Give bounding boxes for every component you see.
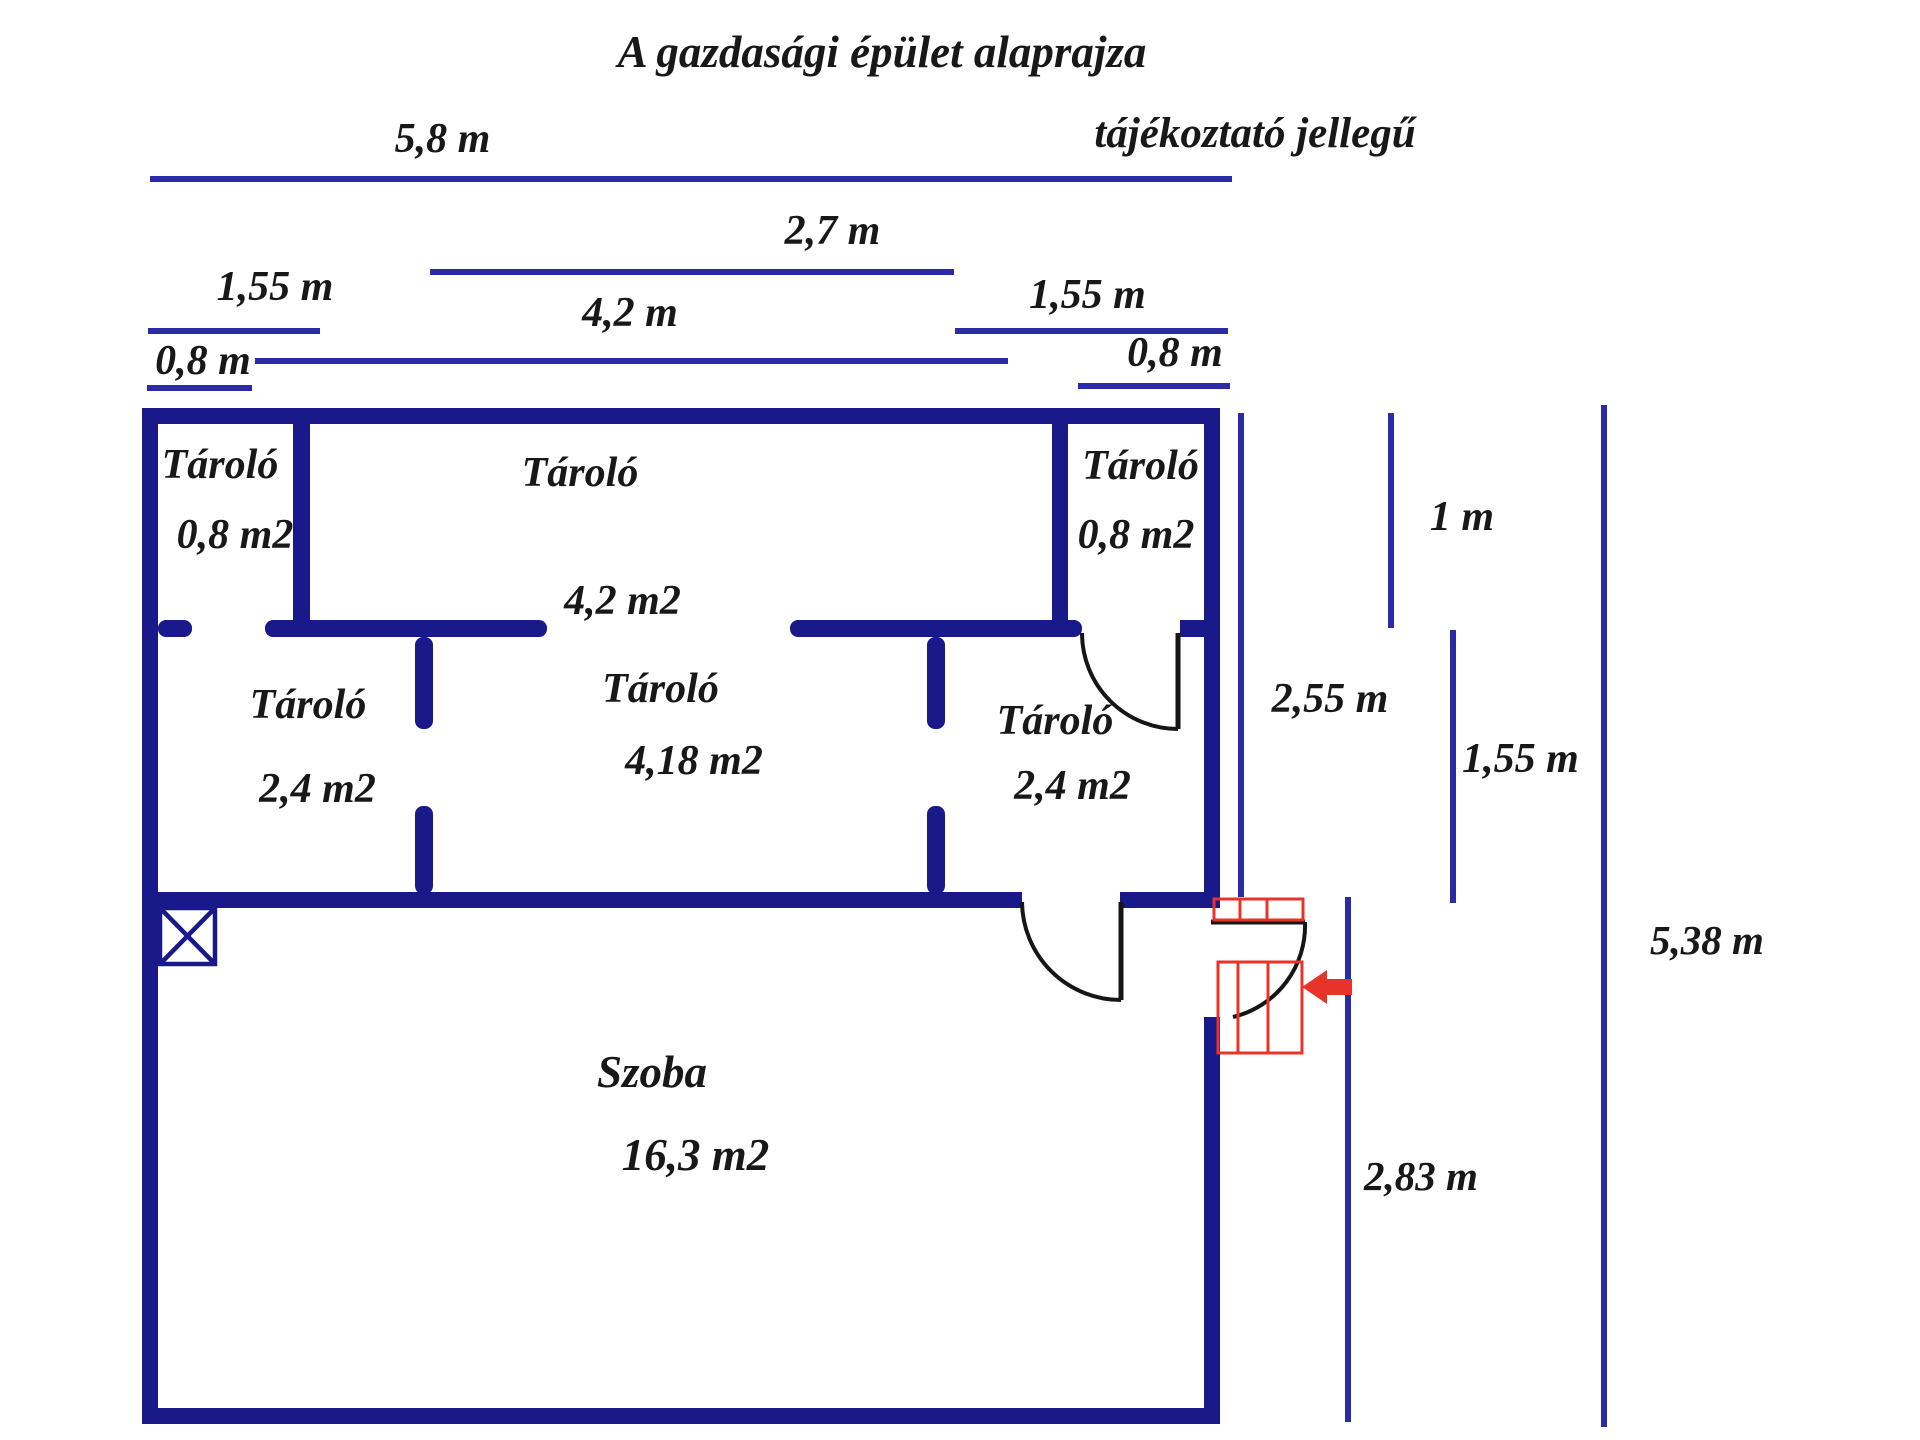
room-storage-topright-area: 0,8 m2 (1060, 512, 1212, 558)
dim-line-width-left (148, 328, 320, 334)
dim-label-height-lower: 2,83 m (1346, 1154, 1496, 1199)
wall-exterior-top (142, 408, 1220, 424)
floor-plan: A gazdasági épület alaprajza tájékoztató… (0, 0, 1920, 1440)
dim-line-height-upper (1238, 413, 1244, 897)
room-storage-midcenter-area: 4,18 m2 (603, 738, 785, 784)
dim-line-door-right (1078, 383, 1230, 389)
dim-label-width-right: 1,55 m (1005, 272, 1170, 318)
wall-exterior-right-lower (1204, 1017, 1220, 1424)
room-storage-midleft-name: Tároló (228, 682, 388, 728)
room-szoba-name: Szoba (578, 1048, 726, 1098)
dim-label-height-total: 5,38 m (1622, 918, 1792, 963)
wall-exterior-left (142, 408, 158, 1424)
wall-divider-segment-1 (158, 620, 192, 637)
room-storage-midright-area: 2,4 m2 (990, 763, 1155, 809)
dim-line-height-top-row (1388, 413, 1394, 628)
dim-line-width-total (150, 176, 1232, 182)
room-storage-topleft-area: 0,8 m2 (155, 512, 315, 558)
wall-divider-segment-3 (790, 620, 1082, 637)
door-entrance-icon (1211, 922, 1305, 1017)
room-storage-topleft-name: Tároló (145, 442, 295, 488)
room-storage-midcenter-name: Tároló (583, 666, 738, 712)
dim-line-height-lower (1345, 897, 1351, 1422)
wall-midright-lower (927, 806, 945, 894)
wall-szoba-top-right (1120, 892, 1204, 908)
dim-line-width-right (955, 328, 1228, 334)
dim-line-door-left (147, 385, 252, 391)
dim-label-height-top-row: 1 m (1412, 494, 1512, 540)
wall-midleft-lower (415, 806, 433, 894)
dim-label-width-center-top: 2,7 m (765, 208, 900, 254)
subtitle-note: tájékoztató jellegű (1035, 110, 1475, 157)
door-szoba-icon (1022, 902, 1121, 1000)
dim-label-width-left: 1,55 m (190, 264, 360, 310)
dim-line-height-total (1601, 405, 1607, 1427)
stairs-lower-icon (1218, 962, 1302, 1053)
dim-line-width-center (255, 358, 1008, 364)
wall-midright-upper (927, 637, 945, 729)
stairs-upper-icon (1214, 899, 1303, 920)
wall-midleft-upper (415, 637, 433, 729)
wall-divider-segment-2 (265, 620, 547, 637)
dim-label-door-right: 0,8 m (1105, 330, 1245, 376)
room-szoba-area: 16,3 m2 (598, 1131, 793, 1181)
wall-exterior-bottom (142, 1408, 1220, 1424)
wall-szoba-top-left (142, 892, 1022, 908)
dim-label-height-mid: 1,55 m (1438, 736, 1603, 782)
wall-divider-segment-4 (1180, 620, 1204, 637)
dim-line-width-center-top (430, 269, 954, 275)
page-title: A gazdasági épület alaprajza (482, 28, 1282, 78)
room-storage-topright-name: Tároló (1063, 443, 1218, 489)
room-storage-midright-name: Tároló (975, 698, 1135, 744)
dim-label-door-left: 0,8 m (138, 338, 268, 384)
window-icon (160, 908, 215, 964)
dim-label-height-upper: 2,55 m (1250, 676, 1410, 722)
room-storage-midleft-area: 2,4 m2 (235, 766, 400, 812)
dim-label-width-total: 5,8 m (375, 116, 510, 162)
room-storage-topcenter-area: 4,2 m2 (535, 578, 710, 624)
room-storage-topcenter-name: Tároló (500, 450, 660, 496)
dim-label-width-center: 4,2 m (560, 290, 700, 336)
dim-line-height-mid (1450, 630, 1456, 903)
